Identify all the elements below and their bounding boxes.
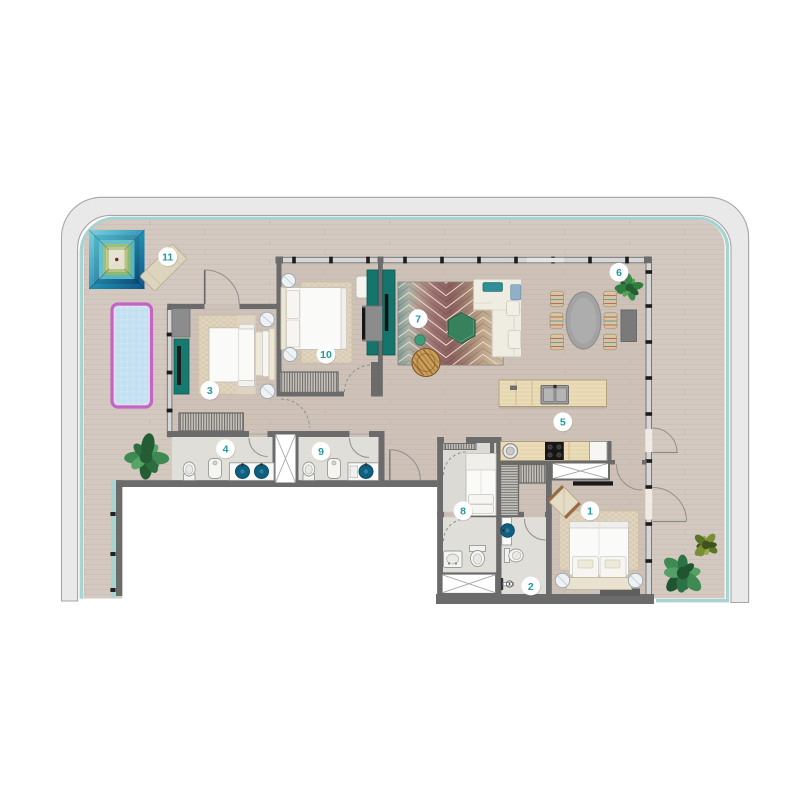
svg-text:5: 5 — [560, 417, 566, 429]
svg-text:9: 9 — [318, 446, 324, 458]
svg-text:3: 3 — [207, 385, 213, 397]
svg-text:1: 1 — [587, 506, 593, 518]
svg-text:10: 10 — [320, 349, 332, 361]
svg-text:6: 6 — [616, 267, 622, 279]
svg-text:11: 11 — [162, 252, 173, 264]
svg-text:7: 7 — [415, 314, 421, 326]
svg-text:2: 2 — [528, 581, 534, 593]
svg-text:8: 8 — [460, 506, 466, 518]
svg-text:4: 4 — [223, 444, 229, 456]
